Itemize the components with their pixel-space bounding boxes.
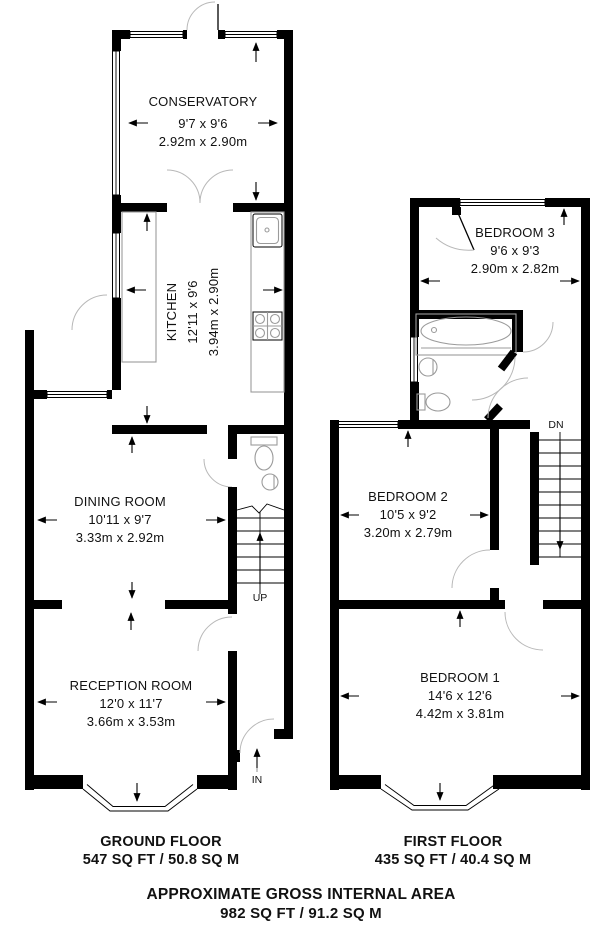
kitchen-side-door-arc [72, 295, 107, 330]
ground-floor-title: GROUND FLOOR [100, 834, 222, 850]
wc-basin [262, 474, 278, 490]
stairs-up-label: UP [253, 592, 268, 604]
bedroom2-label: BEDROOM 2 [368, 489, 448, 504]
bedroom3-label: BEDROOM 3 [475, 225, 555, 240]
bathroom-room [410, 310, 553, 429]
bathroom-basin [419, 358, 437, 376]
conservatory-dims-imperial: 9'7 x 9'6 [178, 116, 227, 131]
bedroom3-door-leaf [458, 213, 474, 250]
bedroom2-door-arc [452, 550, 490, 588]
stairs-down: DN [530, 419, 581, 565]
footer: APPROXIMATE GROSS INTERNAL AREA 982 SQ F… [146, 886, 455, 922]
bedroom1-label: BEDROOM 1 [420, 670, 500, 685]
bedroom1-door-arc [505, 612, 543, 650]
bedroom1-room: BEDROOM 1 14'6 x 12'6 4.42m x 3.81m [330, 600, 590, 800]
dining-dims-metric: 3.33m x 2.92m [76, 530, 165, 545]
conservatory-dims-metric: 2.92m x 2.90m [159, 134, 248, 149]
kitchen-label-group: KITCHEN 12'11 x 9'6 3.94m x 2.90m [164, 268, 221, 357]
bedroom3-door-arc [436, 238, 474, 250]
footer-total-area: 982 SQ FT / 91.2 SQ M [220, 905, 382, 922]
bedroom2-dims-metric: 3.20m x 2.79m [364, 525, 453, 540]
first-floor-plan: BEDROOM 3 9'6 x 9'3 2.90m x 2.82m [330, 198, 590, 868]
landing-door-arc [523, 322, 553, 352]
ground-floor-area: 547 SQ FT / 50.8 SQ M [83, 852, 240, 868]
first-right-wall [581, 198, 590, 790]
floorplan-canvas: CONSERVATORY 9'7 x 9'6 2.92m x 2.90m [0, 0, 608, 929]
reception-label: RECEPTION ROOM [70, 678, 193, 693]
reception-dims-imperial: 12'0 x 11'7 [99, 696, 162, 711]
bay-window-ground [25, 775, 237, 811]
bedroom1-dims-metric: 4.42m x 3.81m [416, 706, 505, 721]
ground-floor-plan: CONSERVATORY 9'7 x 9'6 2.92m x 2.90m [25, 2, 293, 868]
wc-door-arc [204, 459, 232, 487]
bedroom3-dims-metric: 2.90m x 2.82m [471, 261, 560, 276]
entrance: IN [231, 719, 293, 786]
bay-window-first [330, 775, 590, 810]
bathtub [416, 314, 516, 355]
dining-dims-imperial: 10'11 x 9'7 [88, 512, 151, 527]
bathroom-toilet [417, 393, 450, 411]
dining-label: DINING ROOM [74, 494, 166, 509]
kitchen-hob [253, 312, 282, 340]
conservatory-label: CONSERVATORY [149, 94, 258, 109]
kitchen-room: KITCHEN 12'11 x 9'6 3.94m x 2.90m [72, 203, 284, 434]
conservatory-door-arc [187, 2, 215, 30]
kitchen-dims-imperial: 12'11 x 9'6 [185, 280, 200, 343]
kitchen-dims-metric: 3.94m x 2.90m [206, 268, 221, 357]
floorplan-page: CONSERVATORY 9'7 x 9'6 2.92m x 2.90m [0, 0, 608, 929]
wc-toilet [251, 437, 277, 470]
stairs-down-label: DN [548, 419, 563, 431]
kitchen-sink [253, 214, 282, 247]
stairs-up: UP [237, 504, 284, 604]
kitchen-worktop-left [122, 212, 156, 362]
first-floor-area: 435 SQ FT / 40.4 SQ M [375, 852, 532, 868]
entrance-label: IN [252, 774, 263, 786]
conservatory-room: CONSERVATORY 9'7 x 9'6 2.92m x 2.90m [112, 2, 293, 730]
bedroom2-dims-imperial: 10'5 x 9'2 [380, 507, 437, 522]
footer-title: APPROXIMATE GROSS INTERNAL AREA [146, 886, 455, 903]
reception-room: RECEPTION ROOM 12'0 x 11'7 3.66m x 3.53m [25, 600, 237, 801]
french-door-right-arc [200, 170, 233, 203]
entrance-door-arc [240, 719, 274, 753]
first-floor-title: FIRST FLOOR [404, 834, 503, 850]
bedroom1-dims-imperial: 14'6 x 12'6 [428, 688, 492, 703]
reception-dims-metric: 3.66m x 3.53m [87, 714, 176, 729]
french-door-left-arc [167, 170, 200, 203]
rear-wing-right-wall [284, 30, 293, 730]
reception-door-arc [198, 617, 232, 651]
bedroom3-dims-imperial: 9'6 x 9'3 [490, 243, 539, 258]
kitchen-label: KITCHEN [164, 283, 179, 341]
